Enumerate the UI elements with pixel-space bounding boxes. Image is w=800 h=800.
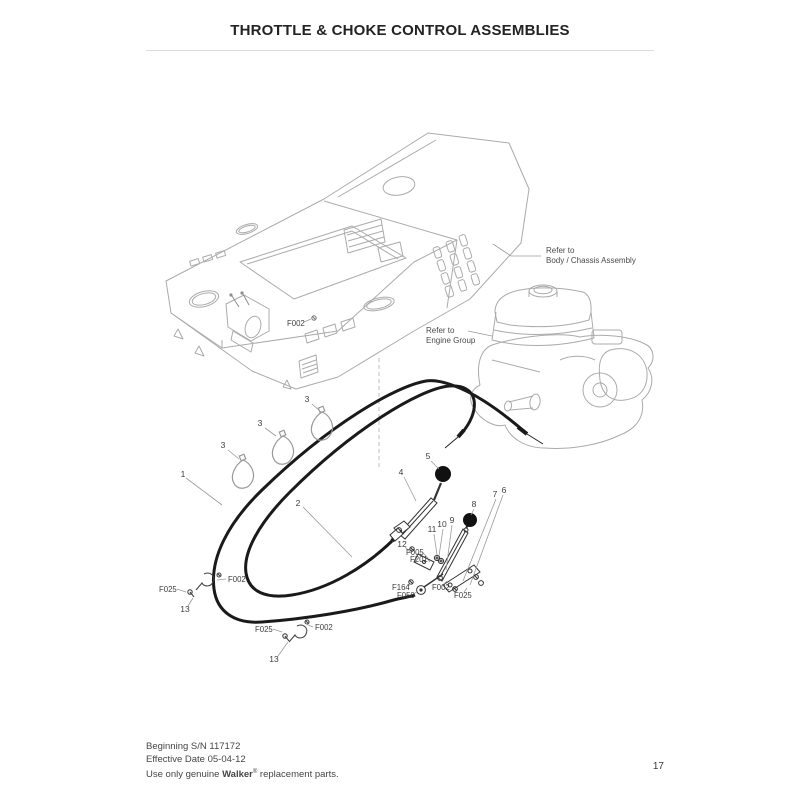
cable-2-ferrule	[458, 430, 464, 437]
body-silhouette	[166, 133, 529, 389]
callout-label: 7	[493, 489, 498, 499]
front-decal	[299, 355, 318, 378]
callout-label: F025	[454, 591, 472, 600]
refer-body-line2: Body / Chassis Assembly	[546, 256, 636, 265]
deck-recess-panel	[240, 226, 406, 299]
cable-tie	[231, 453, 256, 490]
control-console	[226, 291, 269, 352]
body-chassis-drawing	[166, 133, 529, 389]
callout-leaders	[177, 319, 503, 656]
callout-label: 4	[399, 467, 404, 477]
callout-label: 9	[450, 515, 455, 525]
refer-body-chassis-label: Refer to Body / Chassis Assembly	[493, 244, 636, 265]
callout-label: 8	[472, 499, 477, 509]
cable-1-wire-end	[527, 434, 543, 444]
footer-serial: Beginning S/N 117172	[146, 740, 339, 753]
cable-1-outer	[213, 381, 543, 623]
lever-cluster	[390, 466, 483, 594]
callout-label: F002	[432, 583, 450, 592]
callout-label: 2	[296, 498, 301, 508]
cover-hole	[382, 174, 417, 197]
refer-engine-group-label: Refer to Engine Group	[426, 326, 492, 345]
page-number: 17	[640, 761, 664, 772]
fuel-cap	[529, 285, 557, 297]
refer-body-line1: Refer to	[546, 246, 575, 255]
knob-8	[463, 513, 477, 527]
dash-screw	[312, 316, 316, 320]
engine-block	[471, 335, 653, 449]
callout-label: F201	[410, 555, 428, 564]
callout-label: F025	[255, 625, 273, 634]
refer-engine-line2: Engine Group	[426, 336, 476, 345]
walker-logo-oval	[188, 288, 221, 310]
engine-drawing	[471, 285, 653, 448]
manual-page: THROTTLE & CHOKE CONTROL ASSEMBLIES	[0, 0, 800, 800]
cover-hatch	[378, 242, 403, 262]
crankshaft	[504, 393, 542, 411]
callout-label: 6	[502, 485, 507, 495]
crankcase-boss-inner	[593, 383, 607, 397]
footer-text: replacement parts.	[257, 769, 338, 780]
callout-label: 11	[428, 524, 437, 534]
air-cleaner	[592, 330, 622, 344]
cable-2-wire-end	[445, 437, 458, 448]
refer-engine-line1: Refer to	[426, 326, 455, 335]
washers	[434, 555, 443, 563]
footer-text: Use only genuine	[146, 769, 222, 780]
cover-step-line	[338, 140, 436, 197]
callout-label: 3	[258, 418, 263, 428]
callout-label: 1	[181, 469, 186, 479]
cable-ties	[231, 405, 335, 490]
callout-label: 3	[305, 394, 310, 404]
cable-clamp-center	[283, 620, 309, 642]
engine-detail-lines	[492, 356, 595, 372]
footer-date: Effective Date 05-04-12	[146, 753, 339, 766]
callout-label: 3	[221, 440, 226, 450]
callout-label: 10	[437, 519, 447, 529]
callout-label: F050	[397, 591, 415, 600]
callout-label: F025	[159, 585, 177, 594]
control-lever-4	[390, 498, 437, 541]
callout-label: F002	[228, 575, 246, 584]
cable-2-inner	[246, 386, 475, 596]
footer-notes: Beginning S/N 117172 Effective Date 05-0…	[146, 740, 339, 781]
knob-5	[435, 466, 451, 482]
cable-1-ferrule	[518, 427, 527, 434]
footer-genuine-parts: Use only genuine Walker® replacement par…	[146, 766, 339, 781]
footer-brand: Walker	[222, 769, 253, 780]
knob-5-shaft	[434, 483, 441, 500]
parts-diagram: Refer to Body / Chassis Assembly Refer t…	[0, 0, 800, 800]
callout-label: F002	[287, 319, 305, 328]
callout-label: 13	[180, 604, 190, 614]
callout-label: 13	[269, 654, 279, 664]
callout-label: F002	[315, 623, 333, 632]
callout-label: 5	[426, 451, 431, 461]
